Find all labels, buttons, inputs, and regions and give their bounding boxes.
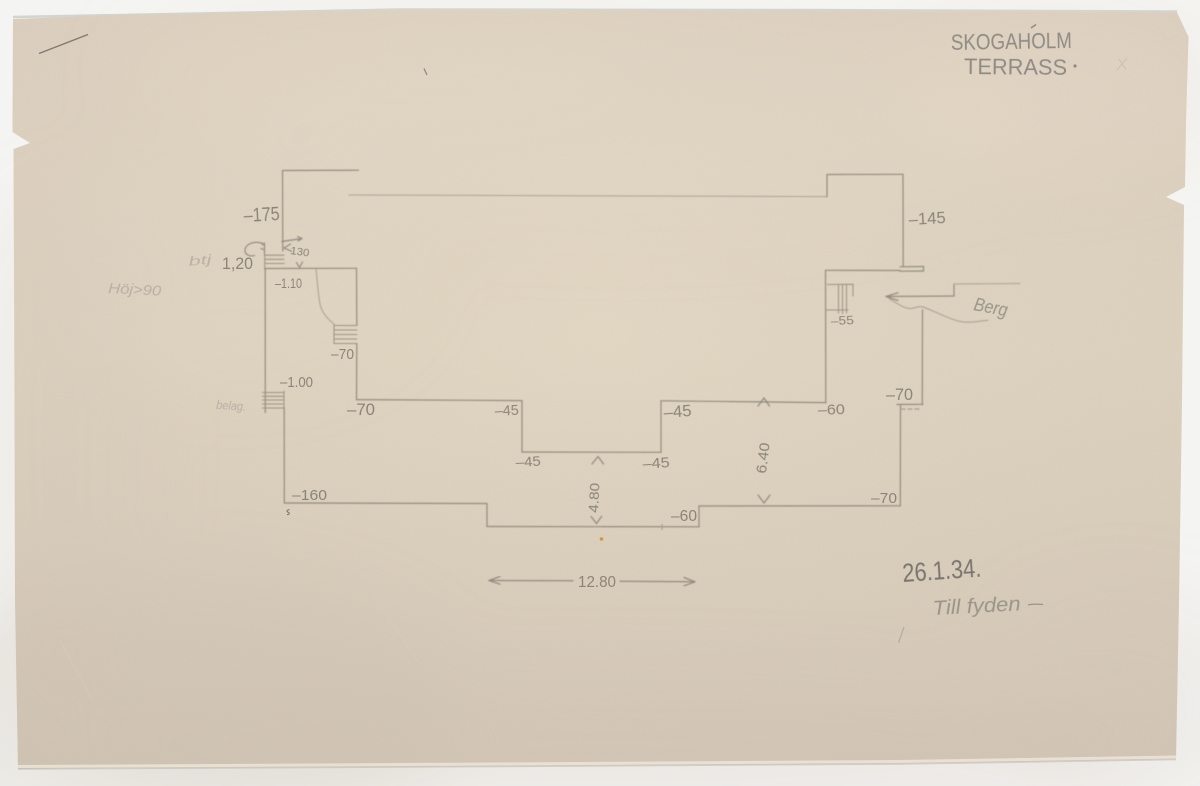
svg-text:belag.: belag. <box>216 398 247 414</box>
svg-text:–70: –70 <box>347 400 375 419</box>
svg-text:–70: –70 <box>871 490 897 507</box>
svg-text:–45: –45 <box>663 401 692 422</box>
svg-text:–1.00: –1.00 <box>280 374 313 391</box>
svg-text:–1.10: –1.10 <box>275 275 302 291</box>
svg-text:btj: btj <box>188 251 214 269</box>
svg-text:4.80: 4.80 <box>585 482 603 513</box>
svg-text:–45: –45 <box>642 454 670 473</box>
svg-text:–60: –60 <box>671 508 697 525</box>
svg-text:–175: –175 <box>243 204 280 227</box>
svg-text:–45: –45 <box>515 453 541 470</box>
svg-text:Till fyden: Till fyden <box>932 593 1021 620</box>
svg-text:–55: –55 <box>831 313 855 328</box>
svg-text:1,20: 1,20 <box>222 254 253 273</box>
svg-text:–70: –70 <box>886 385 913 404</box>
svg-text:26.1.34.: 26.1.34. <box>901 553 982 588</box>
svg-text:–45: –45 <box>494 402 519 420</box>
svg-text:TERRASS: TERRASS <box>964 54 1067 80</box>
svg-text:12.80: 12.80 <box>578 574 616 591</box>
svg-text:–60: –60 <box>818 401 846 419</box>
svg-text:–145: –145 <box>908 208 946 229</box>
svg-text:–70: –70 <box>331 346 354 363</box>
svg-text:–160: –160 <box>292 487 327 504</box>
svg-text:SKOGAHOLM: SKOGAHOLM <box>951 28 1072 55</box>
svg-text:Höj>90: Höj>90 <box>108 280 163 300</box>
